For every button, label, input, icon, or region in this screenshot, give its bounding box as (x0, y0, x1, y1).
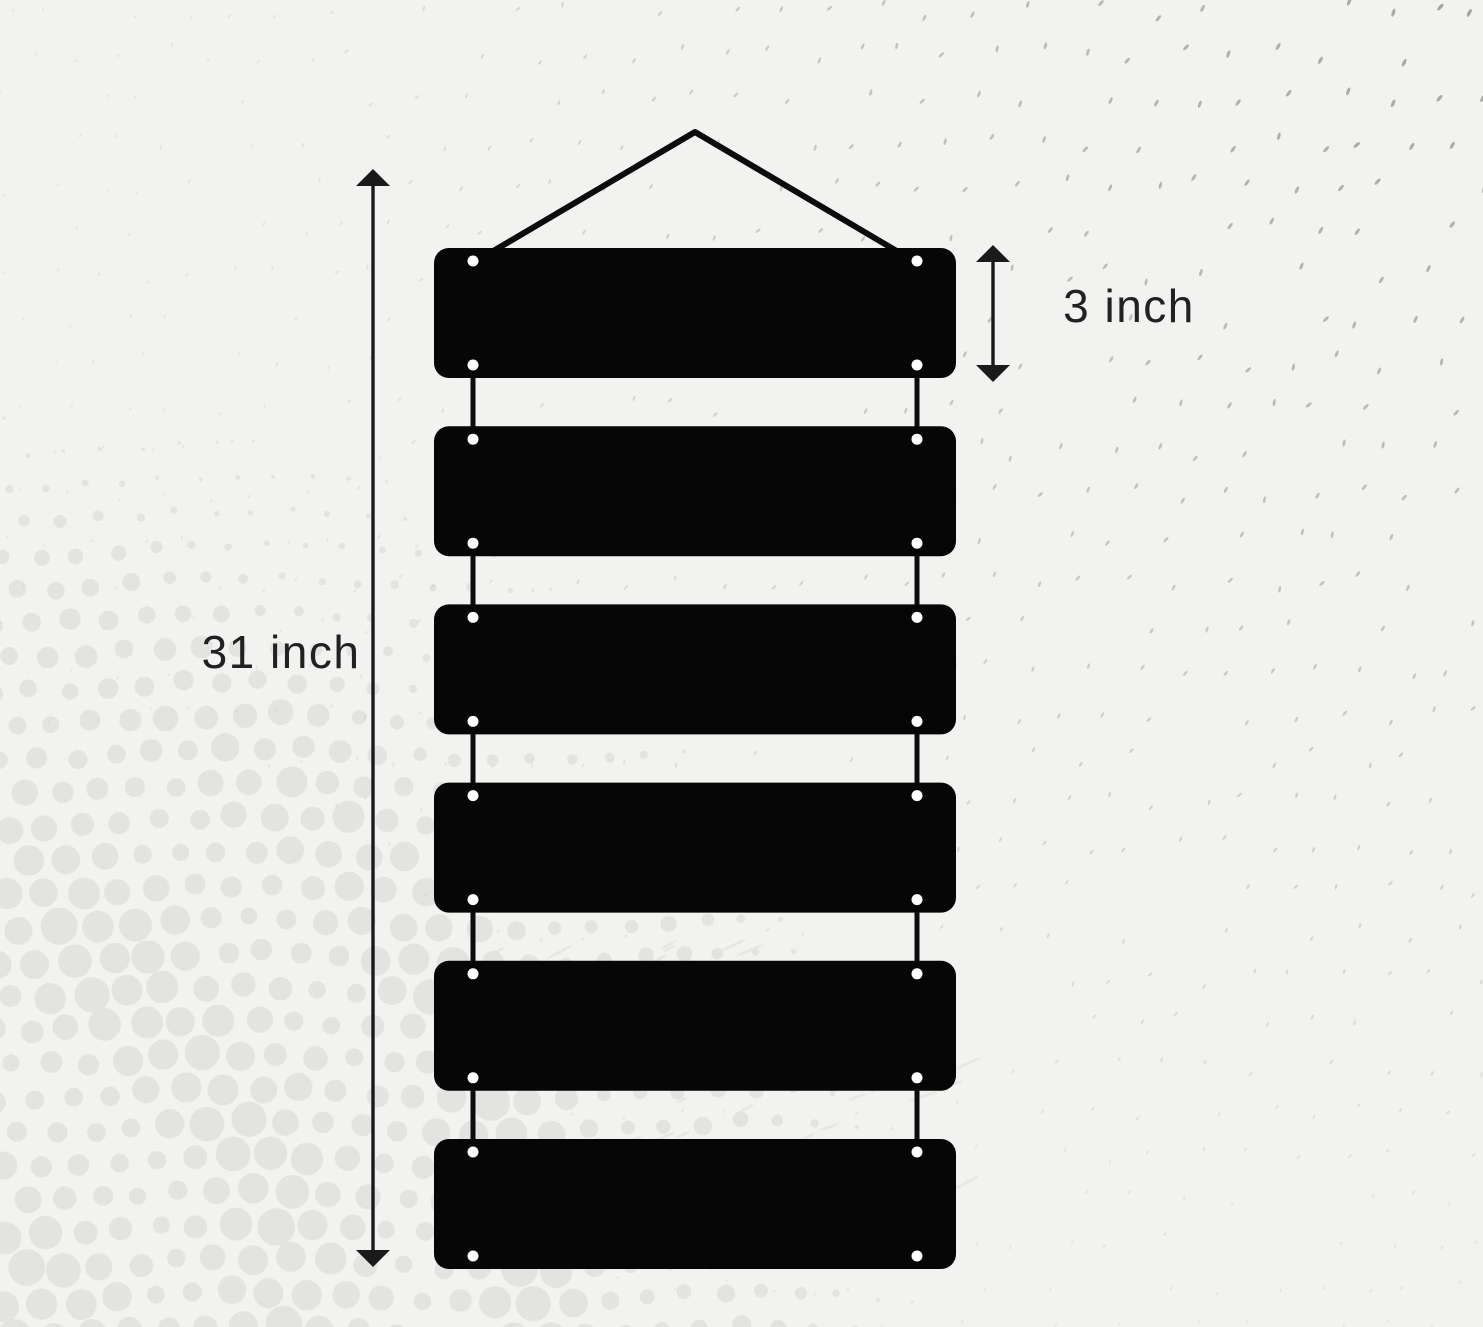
height-dimension-label: 31 inch (202, 626, 361, 678)
halftone-dot (108, 812, 130, 834)
halftone-dot (26, 1288, 57, 1319)
halftone-dot (42, 485, 50, 493)
plank-hole (912, 716, 923, 727)
halftone-dot (347, 984, 366, 1003)
halftone-dot (29, 878, 58, 907)
halftone-dot (313, 910, 338, 935)
halftone-dot (352, 710, 367, 725)
halftone-dot (74, 1221, 98, 1245)
halftone-dot (153, 1217, 170, 1234)
halftone-dot (197, 770, 223, 796)
plank-hole (912, 894, 923, 905)
halftone-dot (214, 511, 220, 517)
halftone-dot (271, 475, 275, 479)
halftone-dot (367, 1085, 389, 1107)
halftone-dot (172, 844, 189, 861)
halftone-dot (400, 1013, 425, 1038)
halftone-dot (81, 579, 99, 597)
halftone-dot (366, 514, 371, 519)
halftone-dot (268, 699, 294, 725)
plank-hole (912, 256, 923, 267)
plank-hole (468, 434, 479, 445)
halftone-dot (66, 1289, 97, 1320)
plank-hole (912, 1072, 923, 1083)
halftone-dot (487, 754, 499, 766)
halftone-dot (422, 654, 430, 662)
halftone-dot (238, 1245, 268, 1275)
halftone-dot (47, 582, 65, 600)
halftone-dot (154, 638, 177, 661)
halftone-dot (22, 613, 41, 632)
halftone-dot (409, 619, 418, 628)
halftone-dot (324, 1080, 346, 1102)
halftone-dot (409, 685, 417, 693)
halftone-dot (292, 736, 314, 758)
halftone-dot (132, 1076, 159, 1103)
plank-5 (434, 961, 956, 1091)
halftone-dot (75, 645, 98, 668)
plank-hole (912, 612, 923, 623)
halftone-dot (601, 1292, 619, 1310)
halftone-dot (356, 1184, 381, 1209)
halftone-dot (221, 877, 242, 898)
halftone-dot (911, 1300, 914, 1303)
halftone-dot (13, 845, 44, 876)
halftone-dot (190, 810, 210, 830)
halftone-dot (400, 1190, 418, 1208)
halftone-dot (621, 1121, 635, 1135)
halftone-dot (53, 1014, 79, 1040)
halftone-dot (119, 481, 125, 487)
halftone-dot (107, 745, 126, 764)
halftone-dot (175, 606, 192, 623)
halftone-dot (346, 477, 350, 481)
halftone-dot (129, 1188, 146, 1205)
halftone-dot (178, 740, 198, 760)
halftone-dot (374, 1154, 393, 1173)
halftone-dot (87, 1123, 106, 1142)
plank-hole (468, 790, 479, 801)
halftone-dot (240, 908, 257, 925)
halftone-dot (284, 1073, 312, 1101)
halftone-dot (384, 1052, 404, 1072)
halftone-dot (369, 1285, 394, 1310)
halftone-dot (100, 943, 130, 973)
halftone-dot (255, 605, 266, 616)
halftone-dot (390, 715, 404, 729)
halftone-dot (153, 706, 179, 732)
halftone-dot (315, 841, 342, 868)
halftone-dot (830, 1090, 836, 1096)
halftone-dot (279, 572, 286, 579)
halftone-dot (567, 754, 578, 765)
halftone-dot (183, 1145, 207, 1169)
halftone-dot (233, 704, 257, 728)
halftone-dot (250, 1077, 277, 1104)
product-dimension-diagram: 31 inch 3 inch (0, 0, 1483, 1327)
halftone-dot (385, 480, 388, 483)
halftone-dot (448, 754, 461, 767)
halftone-dot (216, 1137, 251, 1172)
halftone-dot (277, 910, 297, 930)
halftone-dot (367, 746, 387, 766)
halftone-dot (207, 1075, 238, 1106)
halftone-dot (340, 1215, 366, 1241)
halftone-dot (134, 677, 154, 697)
plank-4 (434, 783, 956, 913)
plank-hole (468, 612, 479, 623)
halftone-dot (150, 541, 162, 553)
halftone-dot (390, 914, 418, 942)
halftone-dot (110, 1154, 129, 1173)
halftone-dot (310, 474, 315, 479)
halftone-dot (141, 447, 145, 451)
halftone-dot (200, 1244, 226, 1270)
halftone-dot (832, 1289, 839, 1296)
halftone-dot (79, 710, 100, 731)
halftone-dot (257, 1208, 295, 1246)
halftone-dot (329, 946, 350, 967)
halftone-dot (147, 1286, 165, 1304)
halftone-dot (131, 1007, 163, 1039)
halftone-dot (401, 1085, 425, 1109)
plank-hole (912, 360, 923, 371)
halftone-dot (378, 976, 407, 1005)
halftone-dot (52, 782, 73, 803)
halftone-dot (272, 1109, 299, 1136)
halftone-dot (294, 606, 304, 616)
halftone-dot (216, 441, 219, 444)
halftone-dot (640, 1289, 655, 1304)
halftone-dot (677, 1284, 692, 1299)
halftone-dot (146, 971, 178, 1003)
halftone-dot (352, 1114, 374, 1136)
halftone-dot (333, 1281, 360, 1308)
halftone-dot (315, 1243, 347, 1275)
halftone-dot (379, 547, 386, 554)
halftone-dot (333, 801, 365, 833)
halftone-dot (71, 813, 94, 836)
halftone-dot (221, 802, 247, 828)
halftone-dot (702, 914, 714, 926)
halftone-dot (353, 776, 374, 797)
halftone-dot (660, 916, 676, 932)
halftone-dot (231, 1102, 266, 1137)
halftone-dot (791, 949, 796, 954)
halftone-dot (185, 1035, 220, 1070)
halftone-dot (319, 578, 326, 585)
halftone-dot (29, 1216, 63, 1250)
halftone-dot (316, 771, 339, 794)
halftone-dot (736, 915, 745, 924)
halftone-dot (82, 911, 114, 943)
halftone-dot (61, 449, 65, 453)
halftone-dot (264, 1043, 287, 1066)
halftone-dot (115, 640, 134, 659)
halftone-dot (9, 717, 27, 735)
halftone-dot (200, 571, 211, 582)
plank-hole (912, 968, 923, 979)
halftone-dot (226, 1042, 255, 1071)
halftone-dot (292, 1280, 322, 1310)
halftone-dot (559, 1289, 588, 1318)
halftone-dot (324, 511, 330, 517)
halftone-dot (413, 747, 426, 760)
halftone-dot (717, 1285, 735, 1303)
halftone-dot (711, 948, 723, 960)
halftone-dot (47, 1122, 67, 1142)
halftone-dot (167, 1249, 186, 1268)
halftone-dot (104, 879, 130, 905)
halftone-dot (415, 550, 422, 557)
halftone-dot (238, 574, 248, 584)
halftone-dot (639, 751, 647, 759)
halftone-dot (12, 779, 38, 805)
halftone-dot (99, 611, 119, 631)
halftone-dot (361, 946, 391, 976)
plank-2 (434, 426, 956, 556)
plank-hole (468, 716, 479, 727)
halftone-dot (356, 844, 382, 870)
halftone-dot (252, 439, 255, 442)
halftone-dot (31, 1156, 52, 1177)
halftone-dot (276, 1175, 310, 1209)
halftone-dot (507, 921, 526, 940)
halftone-dot (75, 977, 110, 1012)
halftone-dot (34, 983, 65, 1014)
halftone-dot (416, 1222, 435, 1241)
halftone-dot (516, 1286, 551, 1321)
halftone-dot (269, 977, 293, 1001)
halftone-dot (155, 1109, 184, 1138)
halftone-dot (394, 777, 413, 796)
plank-hole (468, 1072, 479, 1083)
halftone-dot (284, 1012, 303, 1031)
halftone-dot (250, 939, 272, 961)
halftone-dot (171, 942, 200, 971)
halftone-dot (449, 1289, 472, 1312)
halftone-dot (656, 1120, 670, 1134)
halftone-dot (398, 944, 429, 975)
halftone-dot (682, 749, 686, 753)
halftone-dot (772, 1115, 784, 1127)
halftone-dot (345, 1049, 363, 1067)
halftone-dot (130, 1254, 153, 1277)
halftone-dot (59, 608, 80, 629)
halftone-dot (206, 843, 226, 863)
halftone-dot (131, 940, 164, 973)
halftone-dot (2, 416, 6, 420)
halftone-dot (354, 581, 362, 589)
halftone-dot (171, 1072, 201, 1102)
plank-3 (434, 604, 956, 734)
plank-hole (468, 968, 479, 979)
halftone-dot (194, 706, 218, 730)
halftone-dot (20, 950, 49, 979)
halftone-dot (854, 1125, 858, 1129)
halftone-dot (733, 1111, 749, 1127)
halftone-dot (53, 515, 66, 528)
halftone-dot (220, 1208, 253, 1241)
plank-hole (912, 538, 923, 549)
halftone-dot (585, 920, 598, 933)
halftone-dot (264, 540, 270, 546)
halftone-dot (625, 920, 638, 933)
halftone-dot (25, 1091, 44, 1110)
halftone-dot (119, 909, 152, 942)
halftone-dot (88, 1008, 121, 1041)
halftone-dot (68, 549, 84, 565)
halftone-dot (297, 1210, 327, 1240)
halftone-dot (795, 1287, 807, 1299)
halftone-dot (605, 753, 615, 763)
halftone-dot (301, 876, 325, 900)
halftone-dot (236, 769, 262, 795)
halftone-dot (219, 943, 239, 963)
halftone-dot (69, 750, 88, 769)
halftone-dot (890, 1127, 893, 1130)
plank-hole (468, 360, 479, 371)
halftone-dot (303, 1046, 328, 1071)
halftone-dot (62, 683, 78, 699)
halftone-dot (138, 606, 155, 623)
diagram-canvas: 31 inch 3 inch (0, 0, 1483, 1327)
halftone-dot (150, 809, 169, 828)
plank-hole (912, 1251, 923, 1262)
halftone-dot (78, 1054, 99, 1075)
halftone-dot (387, 1121, 408, 1142)
halftone-dot (276, 836, 304, 864)
halftone-dot (414, 1293, 431, 1310)
halftone-dot (37, 647, 59, 669)
halftone-dot (261, 804, 289, 832)
halftone-dot (98, 678, 119, 699)
halftone-dot (143, 875, 170, 902)
halftone-dot (322, 1017, 340, 1035)
halftone-dot (177, 441, 181, 445)
halftone-dot (42, 716, 59, 733)
halftone-dot (412, 1156, 435, 1179)
halftone-dot (133, 845, 152, 864)
halftone-dot (301, 807, 325, 831)
halftone-dot (166, 1007, 195, 1036)
halftone-dot (246, 842, 268, 864)
halftone-dot (163, 572, 176, 585)
halftone-dot (580, 1119, 599, 1138)
halftone-dot (524, 753, 535, 764)
halftone-dot (113, 1046, 143, 1076)
halftone-dot (383, 646, 393, 656)
halftone-dot (778, 917, 783, 922)
halftone-dot (168, 1181, 187, 1200)
halftone-dot (46, 1253, 81, 1288)
halftone-dot (291, 1143, 323, 1175)
halftone-dot (549, 588, 552, 591)
halftone-dot (183, 1282, 202, 1301)
halftone-dot (92, 843, 119, 870)
halftone-dot (7, 1122, 27, 1142)
halftone-dot (170, 507, 177, 514)
halftone-dot (548, 922, 561, 935)
halftone-dot (187, 541, 195, 549)
plank-hole (468, 1147, 479, 1158)
halftone-dot (97, 447, 102, 452)
halftone-dot (254, 1137, 287, 1170)
halftone-dot (876, 1298, 880, 1302)
halftone-dot (193, 976, 219, 1002)
halftone-dot (403, 517, 407, 521)
halftone-dot (155, 475, 160, 480)
halftone-dot (58, 944, 92, 978)
halftone-dot (2, 1054, 19, 1071)
halftone-dot (137, 514, 145, 522)
halftone-dot (109, 1217, 132, 1240)
halftone-dot (811, 1119, 819, 1127)
halftone-dot (102, 1282, 131, 1311)
halftone-dot (51, 845, 80, 874)
halftone-dot (15, 1186, 42, 1213)
halftone-dot (677, 946, 693, 962)
halftone-dot (112, 975, 143, 1006)
halftone-dot (308, 981, 326, 999)
halftone-dot (5, 485, 13, 493)
halftone-dot (85, 1253, 112, 1280)
halftone-dot (173, 670, 194, 691)
halftone-dot (235, 475, 240, 480)
halftone-dot (140, 739, 163, 762)
halftone-dot (0, 647, 18, 665)
halftone-dot (26, 453, 31, 458)
halftone-dot (26, 747, 47, 768)
halftone-dot (148, 1151, 166, 1169)
halftone-dot (148, 1039, 178, 1069)
halftone-dot (100, 1087, 120, 1107)
halftone-dot (276, 767, 307, 798)
halftone-dot (390, 842, 419, 871)
halftone-dot (395, 1256, 412, 1273)
halftone-dot (201, 907, 222, 928)
halftone-dot (21, 1021, 43, 1043)
halftone-dot (0, 985, 21, 1007)
halftone-dot (253, 1278, 283, 1308)
plank-hole (468, 256, 479, 267)
halftone-dot (335, 872, 364, 901)
halftone-dot (479, 1286, 511, 1318)
halftone-dot (754, 1284, 768, 1298)
halftone-dot (111, 546, 126, 561)
halftone-dot (82, 479, 89, 486)
halftone-dot (254, 738, 276, 760)
halftone-dot (247, 1007, 273, 1033)
halftone-dot (93, 510, 104, 521)
halftone-dot (238, 1173, 269, 1204)
halftone-dot (5, 917, 33, 945)
halftone-dot (303, 543, 308, 548)
halftone-dot (417, 816, 436, 835)
halftone-dot (121, 1118, 140, 1137)
halftone-dot (291, 943, 312, 964)
halftone-dot (231, 972, 255, 996)
plank-height-dimension-label: 3 inch (1063, 280, 1195, 332)
halftone-dot (199, 478, 203, 482)
halftone-dot (339, 543, 346, 550)
halftone-dot (508, 588, 513, 593)
halftone-dot (694, 1117, 712, 1135)
halftone-dot (41, 1051, 63, 1073)
halftone-dot (167, 778, 186, 797)
plank-hole (468, 894, 479, 905)
halftone-dot (638, 947, 654, 963)
